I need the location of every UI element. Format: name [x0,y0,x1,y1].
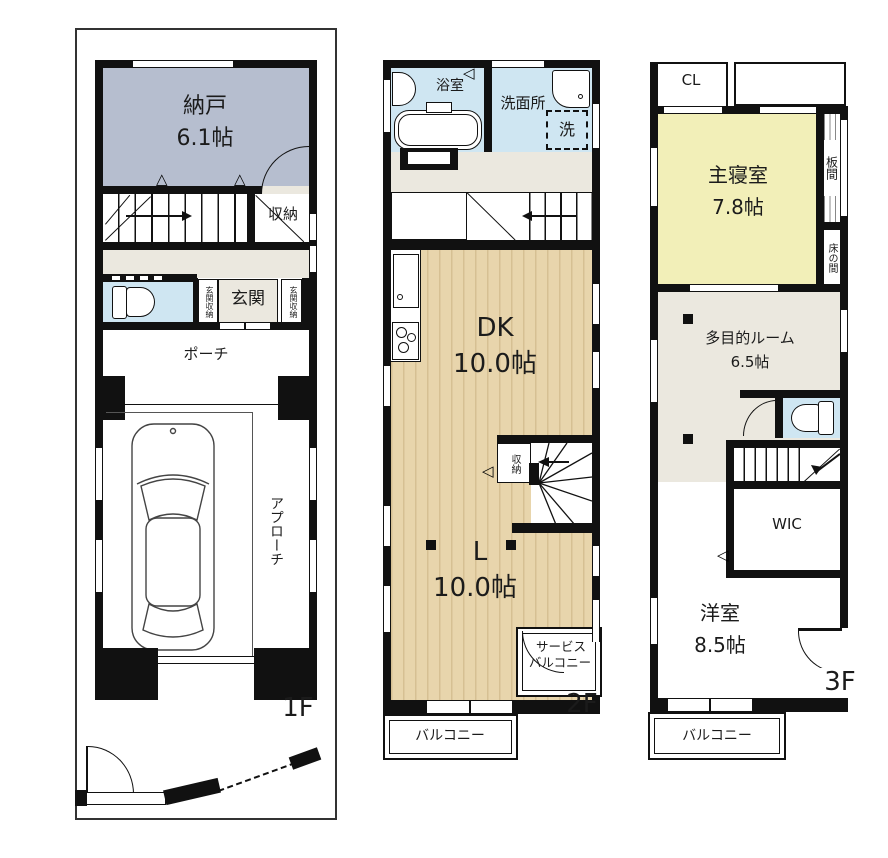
f1-window-left-1 [95,448,103,500]
f3-multi-size: 6.5帖 [712,354,788,371]
f2-wall-stairs-bottom [391,240,592,250]
f3-wall-stairs-bottom [726,481,840,489]
f3-wall-itanoma-bottom [816,222,840,230]
f1-porch-stub-right [278,376,317,420]
f2-bath-tap [426,102,452,113]
f2-washer-label: 洗 [559,121,575,139]
f2-living-size: 10.0帖 [412,574,538,604]
f1-window-top [133,60,233,68]
f1-closet-label: 収納 [258,206,308,223]
f2-living-label: L [455,538,505,568]
f1-window-right-2 [309,540,317,592]
f3-window-top-2 [760,106,816,114]
f2-kitchen-stove [392,322,419,360]
f2-burner-1 [396,327,407,338]
f3-top-right-box [734,62,846,106]
f2-burner-3 [398,342,409,353]
f2-post-1 [426,540,436,550]
f3-balcony-door-tick [709,698,711,712]
f2-winder-pivot-post [529,463,539,485]
f1-stairs-arrow-head [182,211,192,221]
f3-floor-label: 3F [814,668,866,698]
f2-wall-winder-bottom [512,523,592,533]
f3-wall-toilet-top [740,390,840,398]
f3-tokonoma-label: 床の間 [825,234,839,282]
f2-dk-label: DK [455,314,535,344]
f2-dk-size: 10.0帖 [430,350,560,380]
f2-balcony-label: バルコニー [400,728,500,744]
f1-corner-block-left [95,648,158,700]
f1-front-opening [158,656,254,664]
f2-post-2 [506,540,516,550]
f2-floor-label: 2F [556,690,608,720]
f3-master-bottom-window [690,284,778,292]
f1-porch-label: ポーチ [160,346,252,363]
f2-stairs-arrow-line [532,215,576,217]
f3-window-left-1 [650,148,658,206]
f3-western-size: 8.5帖 [680,634,760,657]
floor-plan-canvas: 納戸 6.1帖 △ △ 収納 玄関収納 玄関 玄関収納 ポーチ [0,0,888,858]
f3-itanoma-label: 板間 [824,140,840,196]
f3-window-right-1 [840,120,848,216]
f2-kitchen-sink-drain [397,294,403,300]
f1-toilet-tank [112,286,127,319]
f1-nando-size: 6.1帖 [146,126,264,151]
f2-window-right-3 [592,546,600,576]
f2-wash-basin-drain [578,94,583,99]
f1-genkan-label: 玄関 [220,290,276,310]
f2-balcony-door-tick [469,700,471,714]
f2-window-right-washer [592,104,600,148]
f3-toilet-tank [818,401,834,435]
f1-genkan-storage-right-label: 玄関収納 [286,282,299,321]
f2-window-right-2 [592,352,600,388]
f2-kitchen-sink [393,254,419,308]
f1-window-right-1 [309,448,317,500]
f2-window-left-4 [383,586,391,632]
f2-wall-winder-top [497,435,592,443]
f3-cl-label: CL [654,72,728,89]
f1-gate-post-left [75,790,87,806]
f2-bath-bump-inner [408,152,450,164]
f3-window-top-1 [664,106,722,114]
f1-slide-marker-1: △ [156,172,168,187]
f1-car [128,420,218,654]
f2-service-balcony-label-1: サービス [522,640,600,654]
f2-wash-basin [552,70,590,108]
f3-wall-stairs-top [726,440,840,448]
f1-window-hall-right-1 [309,214,317,240]
f1-stairs-arrow-line [126,215,184,217]
f1-entrance-tick [244,322,246,330]
f1-gate-base [84,792,166,805]
f3-western-label: 洋室 [686,602,754,625]
f1-wall-stairs-bottom [103,242,255,250]
f1-toilet-bowl [126,287,155,317]
f3-toilet-bowl [791,404,820,432]
f1-wall-porch-top-left [103,322,220,330]
f3-window-left-2 [650,340,658,402]
f1-floor-label: 1F [272,694,324,724]
f2-window-right-1 [592,284,600,324]
f3-window-left-3 [650,598,658,644]
f3-stairs [734,448,804,481]
f2-window-top [492,60,544,68]
f2-burner-2 [407,333,416,342]
f3-balcony-label: バルコニー [667,728,767,744]
f1-wall-porch-top-right [270,322,309,330]
f1-approach-label: アプローチ [262,466,286,596]
f1-slide-marker-2: △ [234,172,246,187]
f3-window-right-2 [840,310,848,352]
f3-wall-master-right [816,114,824,284]
f2-stairs-arrow-head [522,211,532,221]
f2-bathtub-inner [398,114,478,146]
f2-winder-door-marker: ◁ [482,464,494,479]
f3-multi-label: 多目的ルーム [674,330,826,347]
f2-service-balcony-label-2: バルコニー [518,656,602,670]
f2-window-right-4 [592,600,600,642]
f3-master-size: 7.8帖 [692,196,784,219]
f2-closet-under-stairs [391,192,467,240]
f1-genkan-storage-left-label: 玄関収納 [202,282,215,321]
f3-wic-door-marker: ◁ [717,548,729,563]
f3-master-label: 主寝室 [678,164,798,187]
f1-window-hall-right-2 [309,246,317,272]
f1-window-left-2 [95,540,103,592]
f3-post-1 [683,314,693,324]
f1-nando-label: 納戸 [150,94,260,119]
f2-window-left-1 [383,80,391,132]
f2-window-left-3 [383,506,391,546]
f3-wic-label: WIC [734,516,840,533]
f1-wall-genkan-right [302,278,309,322]
f2-window-left-2 [383,366,391,406]
f2-washer-space: 洗 [546,110,588,150]
f2-winder-closet-label: 収納 [506,447,522,481]
f1-porch-step-line [125,404,278,405]
f2-bath-door-marker: ◁ [463,66,475,81]
f3-wall-wic-bottom [726,570,840,578]
f3-post-2 [683,434,693,444]
f1-wall-closet-bottom [255,242,309,250]
f2-winder-stairs [531,443,592,532]
f1-toilet-cabinet-dashed [112,276,168,280]
